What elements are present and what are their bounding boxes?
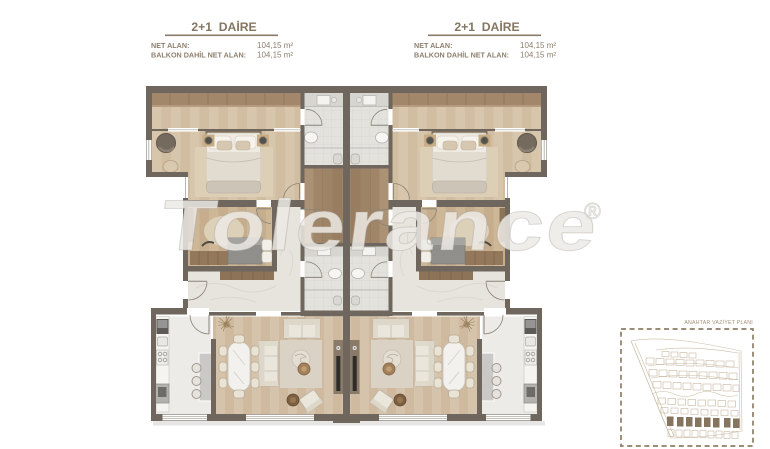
svg-text:104,15 m²: 104,15 m² [520, 51, 556, 60]
svg-text:NET ALAN:: NET ALAN: [414, 41, 452, 50]
svg-text:BALKON DAHİL NET ALAN:: BALKON DAHİL NET ALAN: [414, 51, 509, 60]
svg-text:NET ALAN:: NET ALAN: [151, 41, 189, 50]
svg-text:2+1 DAİRE: 2+1 DAİRE [191, 19, 256, 34]
svg-text:BALKON DAHİL NET ALAN:: BALKON DAHİL NET ALAN: [151, 51, 246, 60]
svg-text:104,15 m²: 104,15 m² [257, 41, 293, 50]
svg-text:2+1 DAİRE: 2+1 DAİRE [454, 19, 519, 34]
svg-text:104,15 m²: 104,15 m² [257, 51, 293, 60]
svg-text:Tolerance: Tolerance [156, 185, 604, 266]
svg-text:ANAHTAR VAZİYET PLANI: ANAHTAR VAZİYET PLANI [684, 319, 753, 326]
svg-text:®: ® [584, 198, 601, 224]
svg-text:104,15 m²: 104,15 m² [520, 41, 556, 50]
